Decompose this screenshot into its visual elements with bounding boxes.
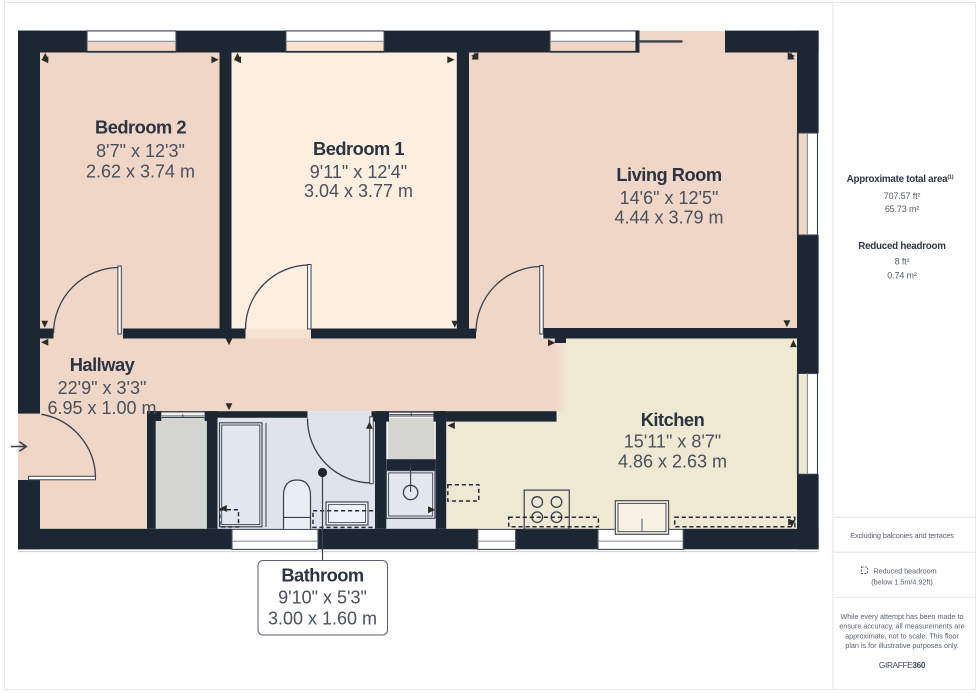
svg-text:8'7" x 12'3": 8'7" x 12'3" [96,141,185,161]
svg-text:Hallway: Hallway [70,354,136,375]
svg-text:9'10" x 5'3": 9'10" x 5'3" [278,588,367,608]
svg-text:ensure accuracy, all measureme: ensure accuracy, all measurements are [839,622,964,631]
svg-text:2.62 x 3.74 m: 2.62 x 3.74 m [86,162,195,182]
svg-text:Kitchen: Kitchen [641,409,705,430]
svg-text:9'11" x 12'4": 9'11" x 12'4" [310,162,407,182]
svg-text:Approximate total area(1): Approximate total area(1) [847,174,954,185]
svg-text:6.95 x 1.00 m: 6.95 x 1.00 m [47,398,156,418]
svg-text:While every attempt has been m: While every attempt has been made to [840,612,963,621]
svg-text:Living Room: Living Room [616,164,721,185]
svg-text:Bathroom: Bathroom [281,564,364,585]
svg-text:GIRAFFE360: GIRAFFE360 [879,661,926,670]
svg-text:Excluding balconies and terrac: Excluding balconies and terraces [850,531,954,540]
svg-text:4.44 x 3.79 m: 4.44 x 3.79 m [614,208,723,228]
svg-text:22'9" x 3'3": 22'9" x 3'3" [58,378,147,398]
svg-text:Bedroom 2: Bedroom 2 [95,117,186,138]
svg-text:Reduced headroom: Reduced headroom [858,241,946,252]
svg-text:plan is for illustrative purpo: plan is for illustrative purposes only. [845,641,958,650]
svg-text:Bedroom 1: Bedroom 1 [313,138,404,159]
svg-text:65.73 m²: 65.73 m² [885,204,919,214]
svg-text:14'6" x 12'5": 14'6" x 12'5" [620,188,719,208]
svg-text:(below 1.5m/4.92ft): (below 1.5m/4.92ft) [871,577,933,586]
svg-text:Reduced headroom: Reduced headroom [873,567,936,576]
svg-text:707.57 ft²: 707.57 ft² [884,191,921,201]
svg-text:4.86 x 2.63 m: 4.86 x 2.63 m [618,452,727,472]
svg-text:0.74 m²: 0.74 m² [887,271,917,281]
svg-text:8 ft²: 8 ft² [895,257,910,267]
svg-text:15'11" x 8'7": 15'11" x 8'7" [624,432,721,452]
svg-text:3.00 x 1.60 m: 3.00 x 1.60 m [268,609,377,629]
svg-text:approximate, not to scale. Thi: approximate, not to scale. This floor [845,631,959,640]
svg-text:3.04 x 3.77 m: 3.04 x 3.77 m [304,181,413,201]
